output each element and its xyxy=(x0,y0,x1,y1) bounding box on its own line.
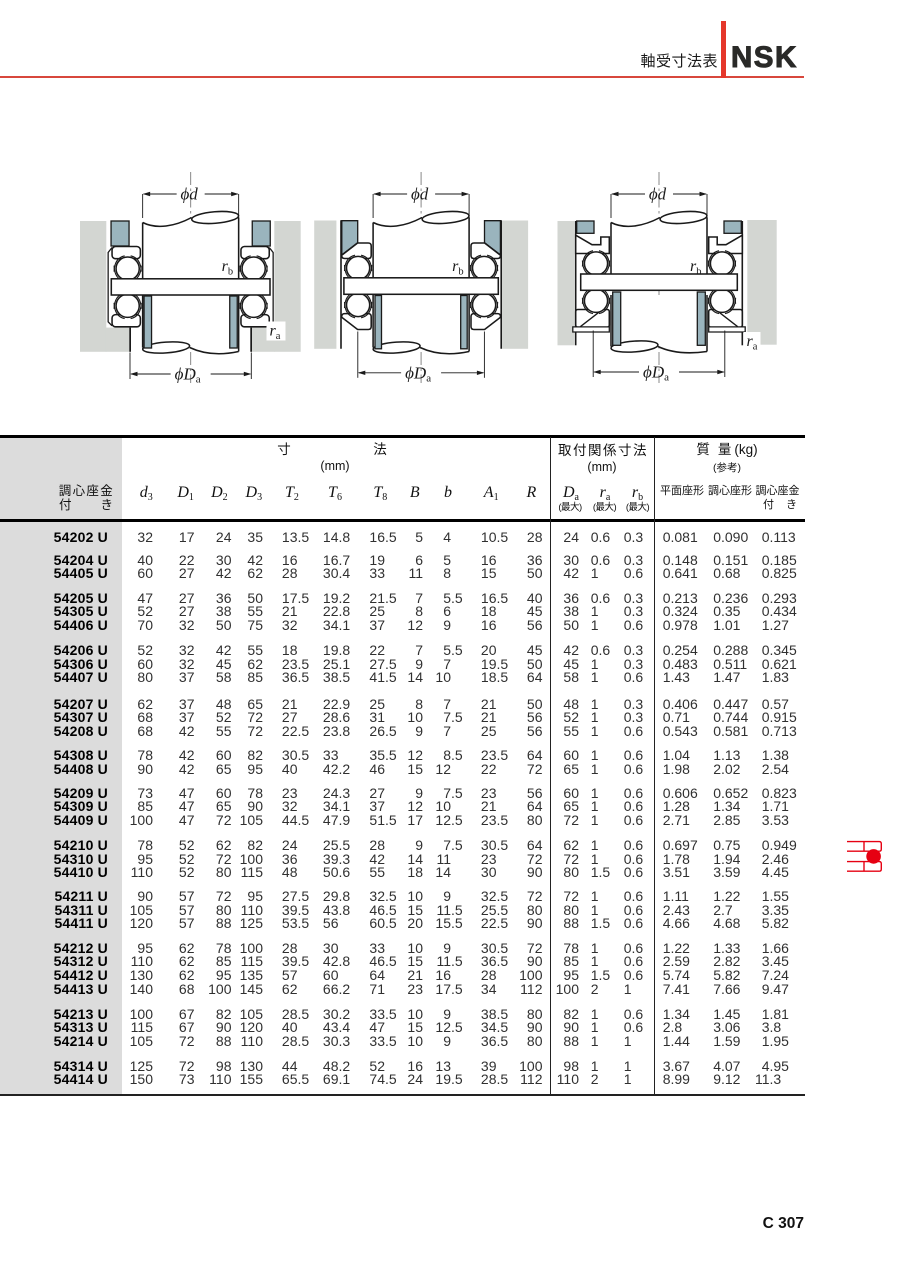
svg-text:ϕDa: ϕDa xyxy=(643,363,669,384)
svg-text:ϕd: ϕd xyxy=(411,185,429,204)
svg-text:ϕd: ϕd xyxy=(649,185,667,204)
svg-text:ϕDa: ϕDa xyxy=(175,365,201,386)
svg-text:ϕd: ϕd xyxy=(180,185,198,204)
svg-text:ϕDa: ϕDa xyxy=(405,363,431,384)
